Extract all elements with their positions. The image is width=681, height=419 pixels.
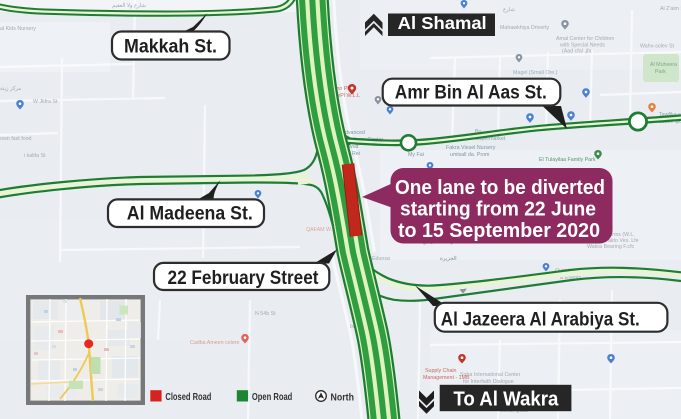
- svg-text:Edunsa: Edunsa: [372, 256, 390, 262]
- svg-text:22 February Street: 22 February Street: [168, 268, 320, 289]
- svg-text:Al Shamal: Al Shamal: [398, 13, 487, 33]
- svg-text:Wahv-solev St: Wahv-solev St: [640, 44, 674, 50]
- svg-text:al Kids Nursery: al Kids Nursery: [0, 26, 36, 32]
- svg-text:Al Jazeera Al Arabiya St.: Al Jazeera Al Arabiya St.: [441, 309, 640, 330]
- svg-text:i kalifa St: i kalifa St: [24, 153, 46, 159]
- svg-text:to 15 September 2020: to 15 September 2020: [398, 219, 600, 242]
- svg-text:To Al Wakra: To Al Wakra: [453, 389, 559, 411]
- svg-text:Cadba Ameen celere: Cadba Ameen celere: [190, 340, 240, 346]
- svg-text:Al Muheera: Al Muheera: [650, 62, 677, 68]
- svg-text:Park: Park: [655, 69, 666, 75]
- svg-text:Fakra Viesel Nursery: Fakra Viesel Nursery: [446, 145, 496, 151]
- svg-text:Al Madeena St.: Al Madeena St.: [127, 204, 253, 225]
- svg-text:North: North: [331, 391, 355, 403]
- svg-text:الجزيرة: الجزيرة: [440, 256, 457, 262]
- svg-text:Management - 1MB: Management - 1MB: [423, 375, 470, 381]
- svg-text:Wakra Bearing F.cfc: Wakra Bearing F.cfc: [587, 244, 635, 250]
- svg-text:umisall da. Prom: umisall da. Prom: [450, 152, 490, 158]
- svg-text:starting from 22 June: starting from 22 June: [400, 198, 596, 221]
- svg-text:Al Z'aim St: Al Z'aim St: [660, 6, 681, 12]
- svg-text:شارع: شارع: [503, 7, 515, 13]
- svg-text:مركز زينة: مركز زينة: [0, 86, 21, 92]
- svg-text:One lane to be diverted: One lane to be diverted: [395, 176, 605, 199]
- svg-text:Amal Center for Children: Amal Center for Children: [556, 36, 614, 42]
- svg-text:Magel (Small Ore.): Magel (Small Ore.): [513, 70, 558, 76]
- svg-text:own fast food: own fast food: [0, 136, 32, 142]
- svg-text:W Jkfra St: W Jkfra St: [33, 99, 58, 105]
- svg-text:Amr Bin Al Aas St.: Amr Bin Al Aas St.: [395, 83, 547, 104]
- svg-text:Makkah St.: Makkah St.: [124, 37, 217, 58]
- svg-text:for Interfaith Dialogue: for Interfaith Dialogue: [463, 379, 514, 385]
- svg-text:Open Road: Open Road: [252, 391, 292, 403]
- svg-text:شارع ولا العقيم: شارع ولا العقيم: [112, 3, 146, 9]
- svg-text:N 54b St: N 54b St: [255, 311, 276, 317]
- svg-text:Closed Road: Closed Road: [165, 391, 211, 403]
- svg-text:My Fai: My Fai: [408, 152, 424, 158]
- svg-text:El Tulayilaa Family Park: El Tulayilaa Family Park: [539, 157, 596, 163]
- svg-text:Supply Chain: Supply Chain: [425, 368, 457, 374]
- svg-text:Mahawkhiya Driverty: Mahawkhiya Driverty: [500, 25, 550, 31]
- svg-text:(Aad cfal .jfa: (Aad cfal .jfa: [562, 49, 591, 55]
